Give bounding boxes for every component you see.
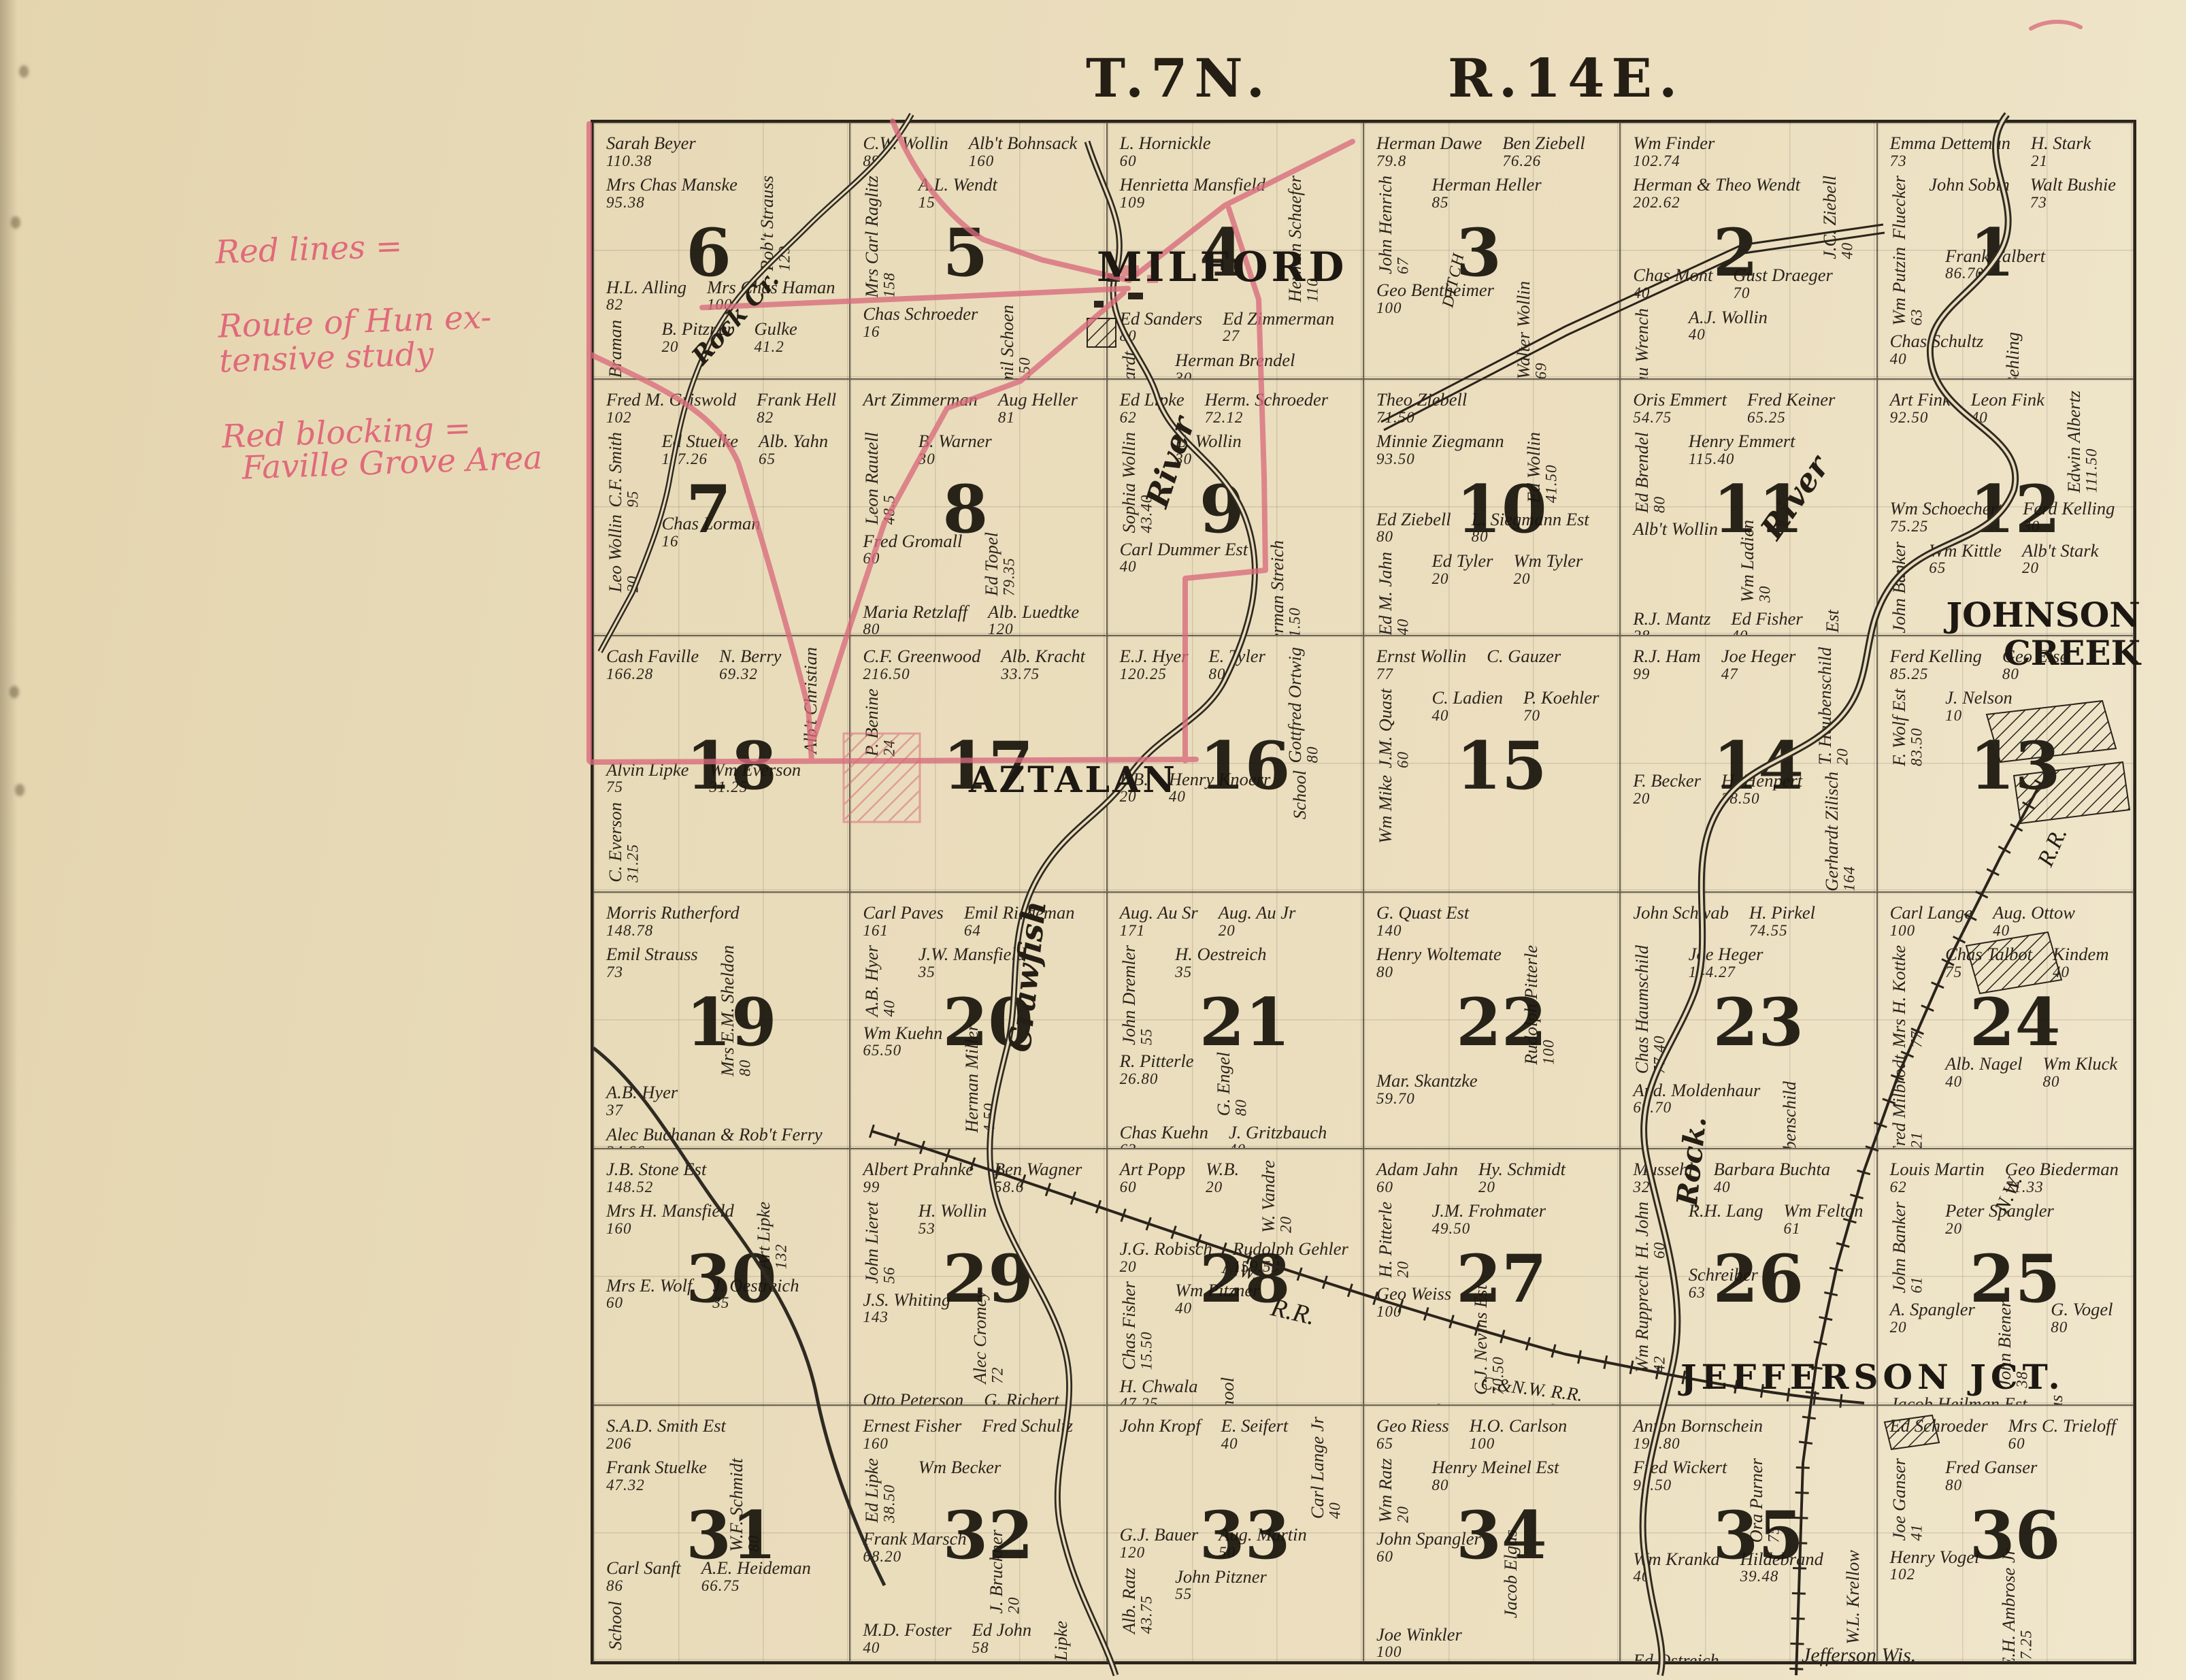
parcel-owner: Fred Ganser80 xyxy=(1945,1458,2037,1493)
parcel-owner: Theo Ziebell71.50 xyxy=(1376,391,1467,425)
parcel-owner: Frank Stuelke47.32 xyxy=(606,1458,707,1493)
township-section: 33 John KropfE. Seifert40Carl Lange Jr40… xyxy=(1107,1405,1363,1662)
parcel-owner: Fred M. Griswold102 xyxy=(606,391,736,425)
parcel-owner: Mau Wrench40 xyxy=(1633,308,1668,379)
parcel-owner: B. Warner30 xyxy=(918,432,992,467)
parcel-owner: Aug. Ottow40 xyxy=(1993,904,2075,938)
section-number: 29 xyxy=(942,1247,1033,1312)
parcel-owner: Ed Zimmerman27 xyxy=(1223,310,1334,344)
township-section: 29 Albert Prahnke99Ben Wagner58.6John Li… xyxy=(850,1149,1106,1405)
parcel-owner: Morris Rutherford148.78 xyxy=(606,904,740,938)
section-number: 32 xyxy=(942,1503,1033,1568)
parcel-owner: Albert Prahnke99 xyxy=(863,1160,974,1195)
section-number: 24 xyxy=(1970,990,2061,1055)
parcel-owner: Chas Braman140 xyxy=(606,320,641,379)
parcel-owner: H.O. Carlson100 xyxy=(1470,1417,1568,1451)
marginal-annotation: Red lines = Route of Hun ex- tensive stu… xyxy=(215,223,604,484)
section-number: 2 xyxy=(1712,220,1758,286)
parcel-owner: Henry Meinel Est80 xyxy=(1431,1458,1559,1493)
parcel-owner: W.L. Krellow xyxy=(1844,1550,1863,1645)
parcel-owner: Wm Ratz20 xyxy=(1376,1458,1411,1523)
footer-label: Jefferson Wis. xyxy=(1802,1644,1916,1667)
parcel-owner: Aug. Au Sr171 xyxy=(1120,904,1198,938)
parcel-owner: Ed John58 xyxy=(972,1621,1032,1656)
parcel-owner: Edwin Albertz111.50 xyxy=(2065,391,2100,493)
parcel-owner: G. Richert9.72 xyxy=(984,1391,1059,1405)
section-number: 5 xyxy=(942,220,988,286)
parcel-owner: H. Chwala47.25 xyxy=(1120,1377,1198,1405)
punch-hole xyxy=(19,65,29,78)
parcel-owner: John Banker61 xyxy=(1890,1202,1925,1294)
parcel-owner: Henry Emmert115.40 xyxy=(1689,432,1795,467)
parcel-owner: Ed Sanders80 xyxy=(1120,310,1202,344)
township-section: 22 G. Quast Est140Henry Woltemate80Rudol… xyxy=(1363,892,1620,1149)
parcel-owner: Geo Riess65 xyxy=(1376,1417,1449,1451)
parcel-owner: Herman Heller85 xyxy=(1431,176,1541,210)
parcel-owner: Chas Mont40 xyxy=(1633,266,1712,301)
parcel-owner: Chas Haumschild77.40 xyxy=(1633,945,1668,1074)
parcel-owner: Mrs E. Wolf60 xyxy=(606,1277,692,1311)
parcel-owner: Adam Jahn60 xyxy=(1376,1160,1458,1195)
parcel-owner: P. Koehler70 xyxy=(1523,689,1599,723)
parcel-owner: Aug Heller81 xyxy=(998,391,1078,425)
parcel-owner: H. Pitterle20 xyxy=(1376,1202,1411,1278)
parcel-owner: S.A.D. Smith Est206 xyxy=(606,1417,726,1451)
parcel-owner: Art Zimmerman xyxy=(863,391,978,410)
parcel-owner: Wm Kranka40 xyxy=(1633,1550,1719,1585)
township-section: 27 Adam Jahn60Hy. Schmidt20H. Pitterle20… xyxy=(1363,1149,1620,1405)
parcel-owner: R.J. Mantz28 xyxy=(1633,610,1710,636)
parcel-owner: H. Pirkel74.55 xyxy=(1749,904,1815,938)
parcel-owner: Ed Lipke38.50 xyxy=(863,1458,897,1523)
section-number: 22 xyxy=(1456,990,1547,1055)
parcel-owner: Herm. Schroeder72.12 xyxy=(1205,391,1329,425)
parcel-owner: Mrs C. Trieloff60 xyxy=(2008,1417,2116,1451)
place-label-johnson-creek: JOHNSON CREEK xyxy=(1905,596,2140,672)
township-section: 2 Wm Finder102.74Herman & Theo Wendt202.… xyxy=(1620,122,1876,379)
map-frame: 6 Sarah Beyer110.38Mrs Chas Manske95.38R… xyxy=(591,120,2136,1664)
township-section: 18 Cash Faville166.28N. Berry69.32Alb't … xyxy=(593,636,850,892)
sections-grid: 6 Sarah Beyer110.38Mrs Chas Manske95.38R… xyxy=(593,122,2134,1662)
township-section: 21 Aug. Au Sr171Aug. Au Jr20John Dremler… xyxy=(1107,892,1363,1149)
parcel-owner: Alvin Lipke75 xyxy=(606,761,689,795)
township-section: 5 C.W. Wollin89Alb't Bohnsack160Mrs Carl… xyxy=(850,122,1106,379)
parcel-owner: Wm Putzin63 xyxy=(1890,247,1925,326)
parcel-owner: F. Becker20 xyxy=(1633,772,1701,806)
parcel-owner: Louis Martin62 xyxy=(1890,1160,1985,1195)
parcel-owner: Herman Dawe79.8 xyxy=(1376,134,1482,169)
parcel-owner: W. Vandre20 xyxy=(1259,1160,1294,1233)
parcel-owner: Mrs H. Kottke77 xyxy=(1890,945,1925,1048)
parcel-owner: School xyxy=(1219,1377,1238,1405)
parcel-owner: Carl Paves161 xyxy=(863,904,944,938)
parcel-owner: Fred Lipke62 xyxy=(1052,1621,1087,1662)
township-section: 15 Ernst Wollin77C. GauzerJ.M. Quast60C.… xyxy=(1363,636,1620,892)
township-section: 11 Oris Emmert54.75Fred Keiner65.25Ed Br… xyxy=(1620,379,1876,636)
parcel-owner: Fred Milbrodt121 xyxy=(1890,1055,1925,1149)
parcel-owner: Anton Bornschein195.80 xyxy=(1633,1417,1763,1451)
section-number: 21 xyxy=(1199,990,1291,1055)
section-number: 8 xyxy=(942,477,988,542)
parcel-owner: F. Wolf Est83.50 xyxy=(1890,689,1925,766)
section-number: 6 xyxy=(686,220,731,286)
parcel-owner: Fred Schultz xyxy=(982,1417,1073,1436)
parcel-owner: E. Tyler80 xyxy=(1208,647,1265,682)
parcel-owner: Wm Becker xyxy=(918,1458,1001,1477)
place-label-jefferson-jct: JEFFERSON JCT. xyxy=(1680,1357,2065,1397)
parcel-owner: Joe Heger47 xyxy=(1721,647,1796,682)
parcel-owner: Mrs Carl Raglitz158 xyxy=(863,176,897,298)
parcel-owner: John Sobin xyxy=(1929,176,2010,195)
parcel-owner: Leon Rautell48.5 xyxy=(863,432,897,525)
parcel-owner: Ed Stuelke117.26 xyxy=(661,432,738,467)
section-number: 23 xyxy=(1712,990,1804,1055)
parcel-owner: Rob't Strauss129 xyxy=(758,176,793,271)
township-section: 13 Ferd Kelling85.25Geo Else80F. Wolf Es… xyxy=(1877,636,2134,892)
parcel-owner: Ed Brendel80 xyxy=(1633,432,1668,513)
parcel-owner: Art Fink92.50 xyxy=(1890,391,1951,425)
parcel-owner: Mrs H. Mansfield160 xyxy=(606,1202,734,1236)
parcel-owner: Alb't Wollin xyxy=(1633,520,1718,539)
parcel-owner: Joe Winkler100 xyxy=(1376,1626,1462,1660)
section-number: 30 xyxy=(686,1247,777,1312)
parcel-owner: M.D. Foster40 xyxy=(863,1621,951,1656)
parcel-owner: Ben Ziebell76.26 xyxy=(1502,134,1585,169)
section-number: 9 xyxy=(1199,477,1245,542)
parcel-owner: T. Haubenschild20 xyxy=(1816,647,1851,765)
place-label-milford: MILFORD xyxy=(1097,244,1347,291)
parcel-owner: Hy. Schmidt20 xyxy=(1478,1160,1566,1195)
parcel-owner: C. Everson31.25 xyxy=(606,802,641,883)
parcel-owner: Wm Geishardt48.60 xyxy=(1120,351,1155,379)
parcel-owner: Cash Faville166.28 xyxy=(606,647,699,682)
section-number: 10 xyxy=(1456,477,1547,542)
township-section: 32 Ernest Fisher160Fred SchultzEd Lipke3… xyxy=(850,1405,1106,1662)
township-section: 19 Morris Rutherford148.78Emil Strauss73… xyxy=(593,892,850,1149)
parcel-owner: School xyxy=(1291,770,1310,819)
township-section: 30 J.B. Stone Est148.52Mrs H. Mansfield1… xyxy=(593,1149,850,1405)
parcel-owner: Carl Lange100 xyxy=(1890,904,1972,938)
parcel-owner: J. Nelson10 xyxy=(1945,689,2013,723)
parcel-owner: Wm Tyler20 xyxy=(1514,552,1583,587)
section-number: 33 xyxy=(1199,1503,1291,1568)
parcel-owner: Alb't Bohnsack160 xyxy=(969,134,1077,169)
parcel-owner: Emil Schoen16.50 xyxy=(998,305,1033,379)
parcel-owner: Alb't Christian xyxy=(801,647,821,754)
township-section: 20 Carl Paves161Emil Riedeman64A.B. Hyer… xyxy=(850,892,1106,1149)
parcel-owner: A.B. Hyer37 xyxy=(606,1083,678,1118)
parcel-owner: J.B. Stone Est148.52 xyxy=(606,1160,706,1195)
section-number: 27 xyxy=(1456,1247,1547,1312)
township-section: 8 Art ZimmermanAug Heller81Leon Rautell4… xyxy=(850,379,1106,636)
parcel-owner: Oris Emmert54.75 xyxy=(1633,391,1727,425)
parcel-owner: R. Pitterle26.80 xyxy=(1120,1052,1194,1087)
parcel-owner: Alb. Yahn65 xyxy=(759,432,828,467)
parcel-owner: Julie Haubenschild64.1 xyxy=(1781,1081,1815,1149)
parcel-owner: Walt Bushie73 xyxy=(2030,176,2116,210)
parcel-owner: John Behling112 xyxy=(2004,332,2038,379)
parcel-owner: P. Benine24 xyxy=(863,689,897,757)
parcel-owner: Ed Schroeder xyxy=(1890,1417,1988,1436)
township-section: 1 Emma Detteman73H. Stark21FlueckerJohn … xyxy=(1877,122,2134,379)
parcel-owner: Herman Streich101.50 xyxy=(1268,540,1303,636)
parcel-owner: Chas Kuehn63 xyxy=(1120,1123,1208,1149)
section-number: 36 xyxy=(1970,1503,2061,1568)
township-section: 7 Fred M. Griswold102Frank Hell82C.F. Sm… xyxy=(593,379,850,636)
township-section: 34 Geo Riess65H.O. Carlson100Wm Ratz20He… xyxy=(1363,1405,1620,1662)
parcel-owner: Gulke41.2 xyxy=(754,320,797,355)
punch-hole xyxy=(11,216,20,229)
parcel-owner: A.L. Wendt15 xyxy=(918,176,997,210)
parcel-owner: G. Engel80 xyxy=(1214,1052,1249,1116)
parcel-owner: C. Gauzer xyxy=(1487,647,1561,666)
parcel-owner: H. John60 xyxy=(1633,1202,1668,1259)
parcel-owner: Ed Tyler20 xyxy=(1431,552,1493,587)
parcel-owner: Wm Mike xyxy=(1376,775,1395,844)
parcel-owner: Leon Fink40 xyxy=(1971,391,2044,425)
section-number: 31 xyxy=(686,1503,777,1568)
parcel-owner: Ernst Wollin77 xyxy=(1376,647,1466,682)
parcel-owner: Ed Ostreich xyxy=(1633,1651,1719,1662)
township-section: 9 Ed Lipke62Herm. Schroeder72.12Sophia W… xyxy=(1107,379,1363,636)
township-section: 31 S.A.D. Smith Est206Frank Stuelke47.32… xyxy=(593,1405,850,1662)
parcel-owner: A. Spangler20 xyxy=(1890,1300,1975,1335)
parcel-owner: Wm Felton61 xyxy=(1783,1202,1863,1236)
section-number: 25 xyxy=(1970,1247,2061,1312)
township-section: 24 Carl Lange100Aug. Ottow40Mrs H. Kottk… xyxy=(1877,892,2134,1149)
parcel-owner: John Lieret56 xyxy=(863,1202,897,1283)
parcel-owner: Gottfred Ortwig80 xyxy=(1286,647,1321,763)
parcel-owner: Carl Lange Jr40 xyxy=(1308,1417,1343,1519)
section-number: 13 xyxy=(1970,734,2061,799)
parcel-owner: Ed M. Jahn40 xyxy=(1376,552,1411,636)
parcel-owner: G. Quast Est140 xyxy=(1376,904,1469,938)
parcel-owner: Kindem40 xyxy=(2053,945,2108,980)
parcel-owner: J. Gritzbauch40 xyxy=(1229,1123,1327,1149)
parcel-owner: Chas Fisher15.50 xyxy=(1120,1281,1155,1370)
section-number: 35 xyxy=(1712,1503,1804,1568)
parcel-owner: N. Berry69.32 xyxy=(719,647,781,682)
parcel-owner: J.M. Quast60 xyxy=(1376,689,1411,768)
place-label-aztalan: AZTALAN xyxy=(969,759,1178,801)
parcel-owner: Herman & Theo Wendt202.62 xyxy=(1633,176,1800,210)
parcel-owner: Frank Hell82 xyxy=(757,391,836,425)
parcel-owner: Carl Sanft86 xyxy=(606,1559,681,1594)
parcel-owner: Mar. Skantzke59.70 xyxy=(1376,1072,1478,1106)
parcel-owner: Art Popp60 xyxy=(1120,1160,1185,1195)
parcel-owner: Henry Woltemate80 xyxy=(1376,945,1502,980)
township-section: 3 Herman Dawe79.8Ben Ziebell76.26John He… xyxy=(1363,122,1620,379)
parcel-owner: Ernest Fisher160 xyxy=(863,1417,961,1451)
punch-hole xyxy=(15,784,24,796)
parcel-owner: Wm Kuehn65.50 xyxy=(863,1024,942,1059)
parcel-owner: Ferd Wollin Est80.75 xyxy=(1823,610,1858,636)
parcel-owner: Alec Buchanan & Rob't Ferry34.66 xyxy=(606,1125,823,1149)
parcel-owner: John Schwab xyxy=(1633,904,1729,923)
parcel-owner: Henrietta Mansfield109 xyxy=(1120,176,1265,210)
parcel-owner: J.S. Whiting143 xyxy=(863,1291,950,1325)
parcel-owner: C.F. Smith95 xyxy=(606,432,641,508)
plat-map-page: T.7N. R.14E. Red lines = Route of Hun ex… xyxy=(0,0,2186,1680)
section-number: 18 xyxy=(686,734,777,799)
parcel-owner: Henry Vogel102 xyxy=(1890,1548,1980,1583)
parcel-owner: Barbara Buchta40 xyxy=(1714,1160,1831,1195)
parcel-owner: Alb. Luedtke120 xyxy=(988,603,1079,636)
section-number: 1 xyxy=(1970,220,2015,286)
parcel-owner: Geo Weiss100 xyxy=(1376,1285,1451,1319)
parcel-owner: Otto Peterson79.90 xyxy=(863,1391,963,1405)
parcel-owner: Emil Strauss73 xyxy=(606,945,698,980)
parcel-owner: C.F. Greenwood216.50 xyxy=(863,647,980,682)
parcel-owner: Emma Detteman73 xyxy=(1890,134,2010,169)
parcel-owner: A.J. Wollin40 xyxy=(1689,308,1768,343)
parcel-owner: Fred Wickert92.50 xyxy=(1633,1458,1727,1493)
parcel-owner: C.W. Wollin89 xyxy=(863,134,948,169)
section-number: 15 xyxy=(1456,734,1547,799)
parcel-owner: E.J. Hyer120.25 xyxy=(1120,647,1189,682)
parcel-owner: John Kropf xyxy=(1120,1417,1201,1436)
parcel-owner: Fluecker xyxy=(1890,176,1909,240)
parcel-owner: Mrs Chas Manske95.38 xyxy=(606,176,738,210)
parcel-owner: J.C. Ziebell40 xyxy=(1821,176,1855,259)
parcel-owner: Wm Rupprecht42 xyxy=(1633,1266,1668,1372)
parcel-owner: School xyxy=(606,1601,625,1650)
parcel-owner: Walter Wollin69 xyxy=(1514,281,1549,379)
parcel-owner: Minnie Ziegmann93.50 xyxy=(1376,432,1504,467)
section-number: 7 xyxy=(686,477,731,542)
township-section: 36 Ed SchroederMrs C. Trieloff60Joe Gans… xyxy=(1877,1405,2134,1662)
parcel-owner: Ed Fisher40 xyxy=(1731,610,1802,636)
township-section: 10 Theo Ziebell71.50Minnie Ziegmann93.50… xyxy=(1363,379,1620,636)
section-number: 19 xyxy=(686,990,777,1055)
township-label: T.7N. xyxy=(1086,48,1272,110)
range-label: R.14E. xyxy=(1448,48,1684,110)
parcel-owner: Chas Talbot75 xyxy=(1945,945,2032,980)
parcel-owner: Alb. Kracht33.75 xyxy=(1001,647,1085,682)
section-number: 14 xyxy=(1712,734,1804,799)
parcel-owner: A.B. Hyer40 xyxy=(863,945,897,1017)
parcel-owner: Ed Ziebell80 xyxy=(1376,510,1451,545)
parcel-owner: J.G. Robisch20 xyxy=(1120,1240,1212,1274)
parcel-owner: E. Seifert40 xyxy=(1221,1417,1289,1451)
parcel-owner: H.L. Alling82 xyxy=(606,278,686,313)
parcel-owner: Joe Heger144.27 xyxy=(1689,945,1763,980)
parcel-owner: Gerhardt Zilisch164 xyxy=(1823,772,1857,891)
parcel-owner: R.J. Ham99 xyxy=(1633,647,1700,682)
parcel-owner: Maria Retzlaff80 xyxy=(863,603,967,636)
parcel-owner: W.B.20 xyxy=(1206,1160,1239,1195)
punch-hole xyxy=(10,686,19,698)
parcel-owner: Herman Brendel30 xyxy=(1175,351,1295,379)
parcel-owner: C. Ladien40 xyxy=(1431,689,1503,723)
parcel-owner: G.J. Bauer120 xyxy=(1120,1526,1199,1560)
township-section: 23 John SchwabH. Pirkel74.55Chas Haumsch… xyxy=(1620,892,1876,1149)
red-corner-mark xyxy=(2031,22,2081,29)
section-number: 16 xyxy=(1199,734,1291,799)
parcel-owner: And. Moldenhaur69.70 xyxy=(1633,1081,1760,1116)
parcel-owner: Chas Schultz40 xyxy=(1890,332,1984,367)
parcel-owner: J.M. Frohmater49.50 xyxy=(1431,1202,1546,1236)
parcel-owner: Wm Finder102.74 xyxy=(1633,134,1715,169)
section-number: 12 xyxy=(1970,477,2061,542)
parcel-owner: Ben Wagner58.6 xyxy=(994,1160,1082,1195)
section-number: 34 xyxy=(1456,1503,1547,1568)
parcel-owner: Joe Ganser41 xyxy=(1890,1458,1925,1541)
parcel-owner: Sarah Beyer110.38 xyxy=(606,134,696,169)
parcel-owner: Aug. Au Jr20 xyxy=(1219,904,1296,938)
township-section: 14 R.J. Ham99Joe Heger47T. Haubenschild2… xyxy=(1620,636,1876,892)
parcel-owner: Chas Schroeder16 xyxy=(863,305,978,340)
parcel-owner: John Henrich67 xyxy=(1376,176,1411,274)
annotation-line: Red lines = xyxy=(215,223,597,269)
parcel-owner: H. Oestreich35 xyxy=(1175,945,1266,980)
township-section: 35 Anton Bornschein195.80Fred Wickert92.… xyxy=(1620,1405,1876,1662)
parcel-owner: Leo Wollin20 xyxy=(606,514,641,593)
section-number: 26 xyxy=(1712,1247,1804,1312)
parcel-owner: H. Wollin53 xyxy=(918,1202,987,1236)
parcel-owner: John Dremler55 xyxy=(1120,945,1155,1045)
parcel-owner: Alb. Ratz43.75 xyxy=(1120,1568,1155,1634)
parcel-owner: Fred Keiner65.25 xyxy=(1747,391,1835,425)
parcel-owner: L. Hornickle60 xyxy=(1120,134,1211,169)
parcel-owner: H. Stark21 xyxy=(2031,134,2091,169)
